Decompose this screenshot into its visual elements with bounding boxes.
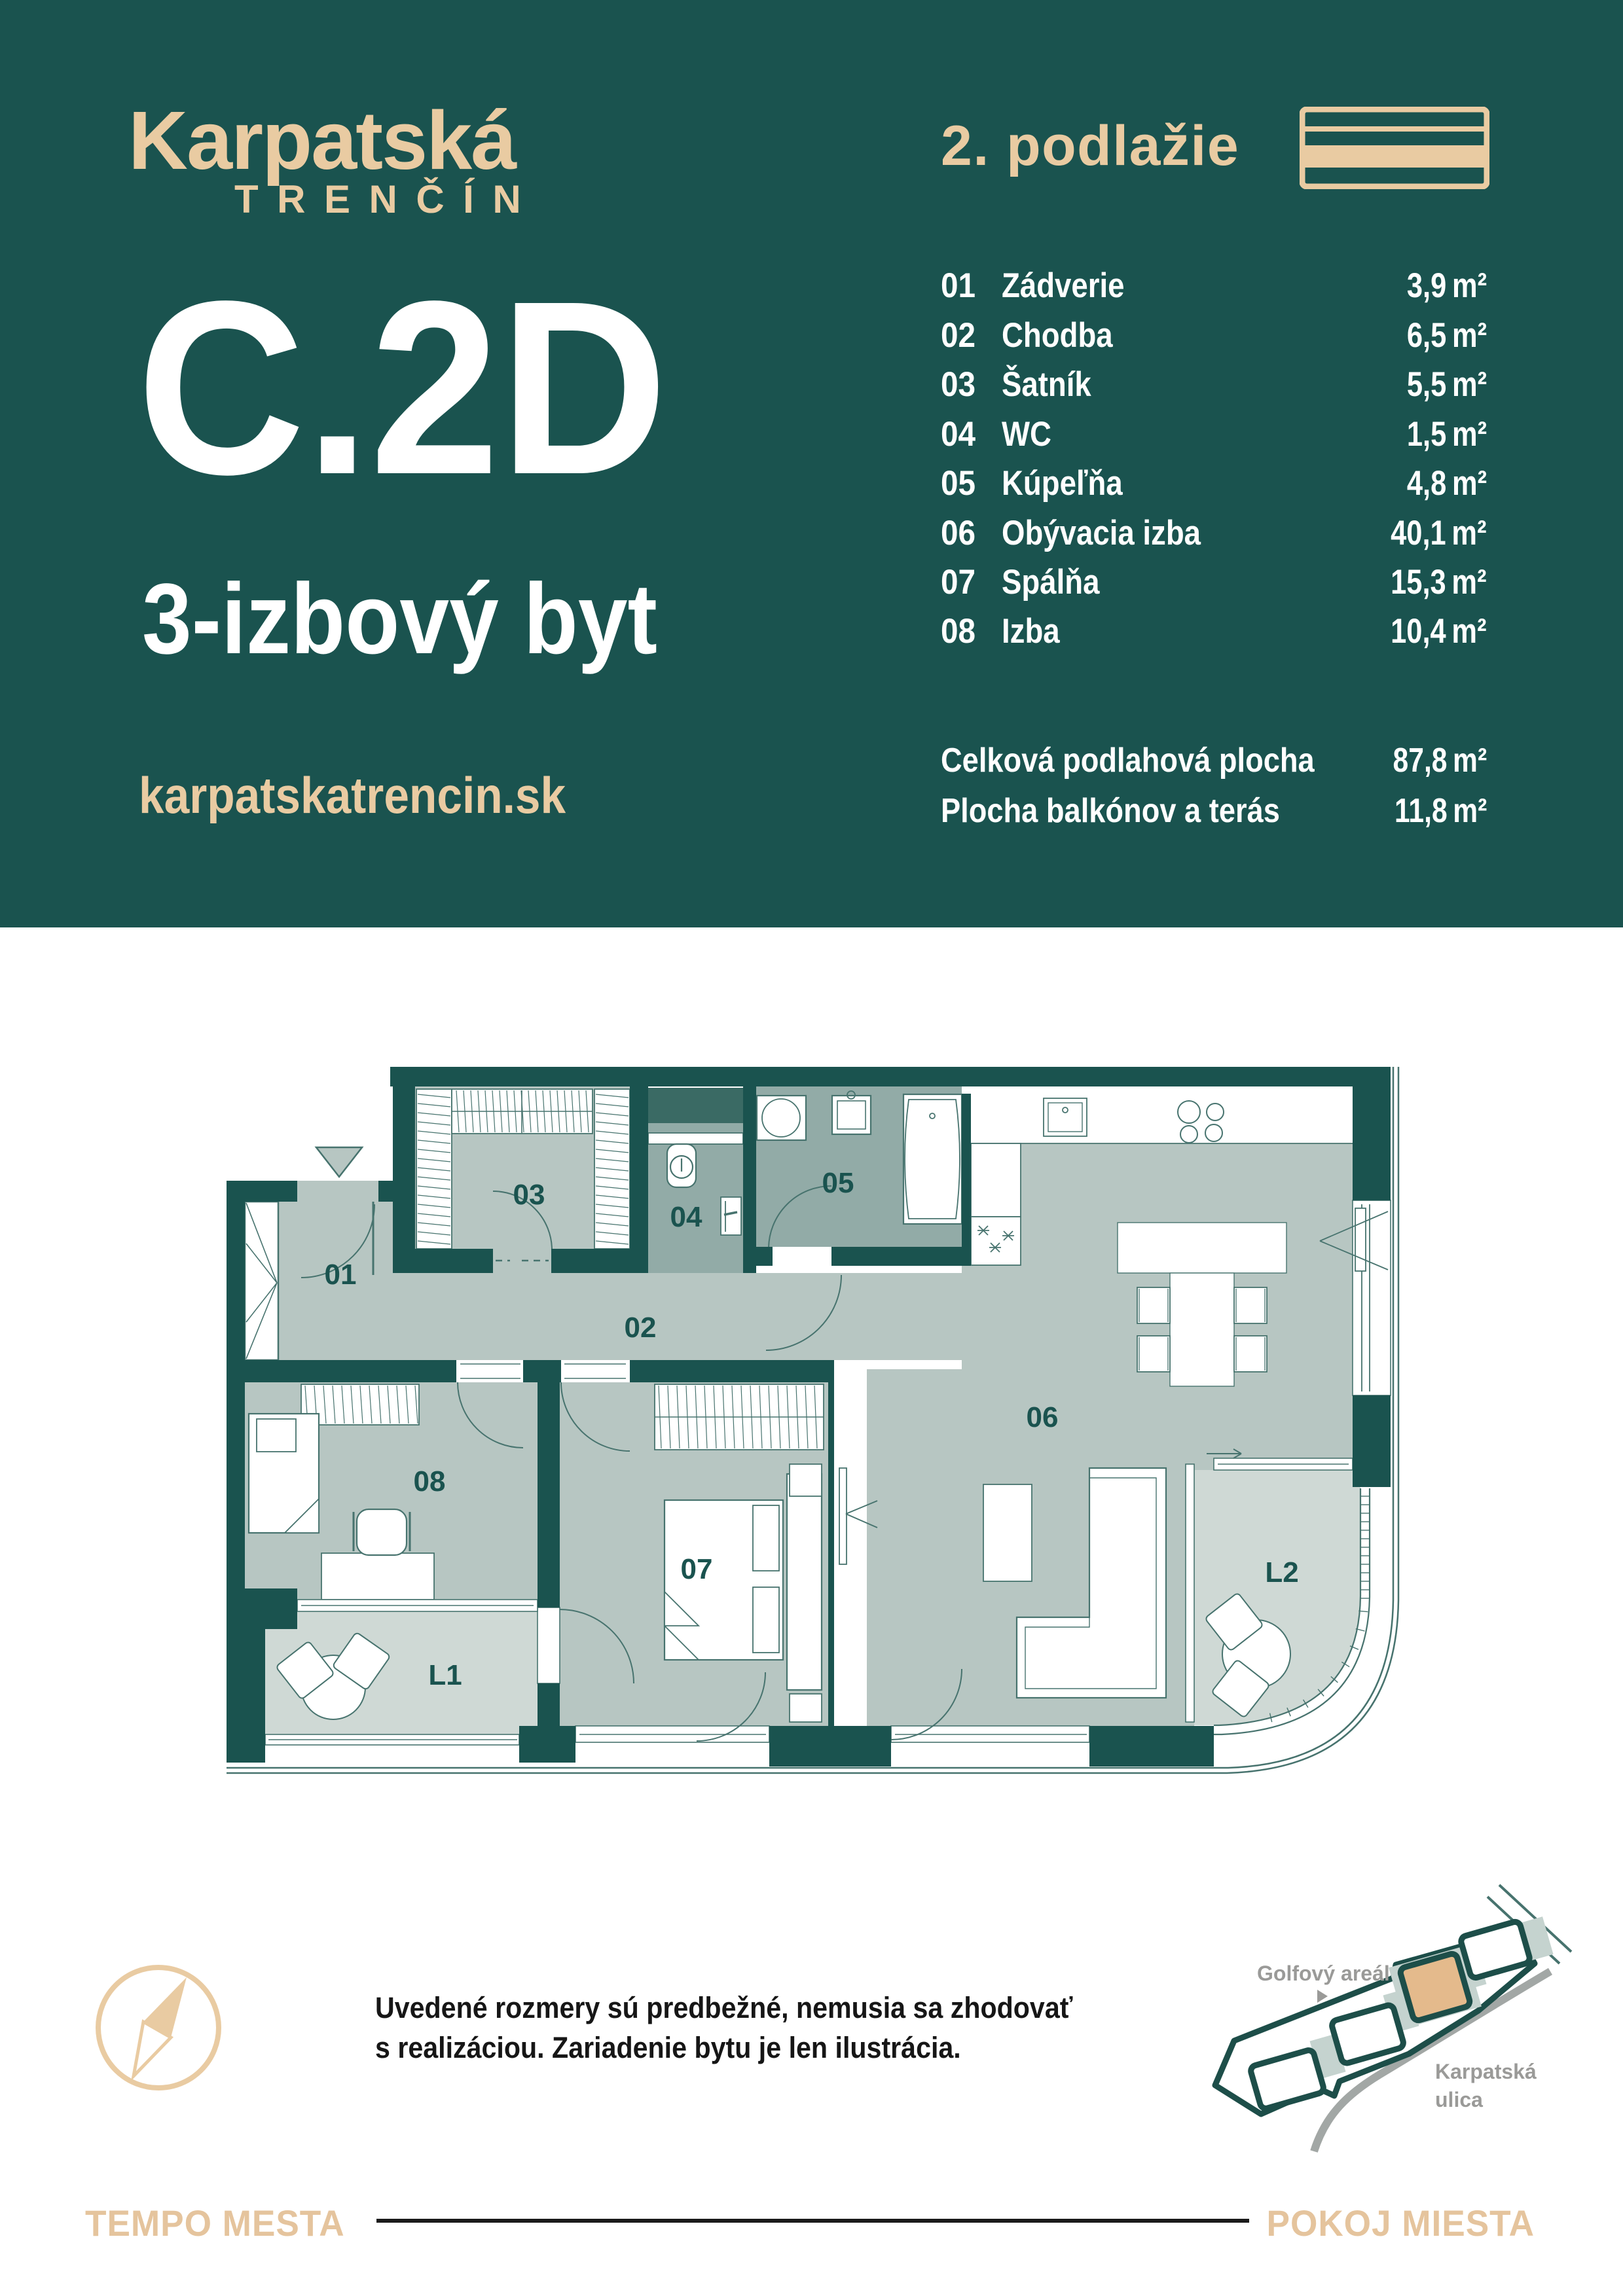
svg-text:07: 07 (681, 1553, 713, 1585)
svg-text:Karpatská: Karpatská (1435, 2060, 1537, 2083)
svg-text:06: 06 (1027, 1401, 1059, 1433)
svg-text:02: 02 (625, 1312, 657, 1344)
svg-text:05: 05 (822, 1167, 854, 1199)
svg-text:L1: L1 (428, 1659, 462, 1691)
svg-text:03: 03 (513, 1179, 545, 1211)
svg-text:ulica: ulica (1435, 2088, 1483, 2111)
svg-text:08: 08 (414, 1465, 446, 1498)
svg-text:01: 01 (325, 1259, 357, 1291)
svg-text:Golfový areál: Golfový areál (1257, 1962, 1390, 1985)
svg-text:L2: L2 (1265, 1556, 1298, 1588)
svg-text:04: 04 (670, 1201, 702, 1233)
